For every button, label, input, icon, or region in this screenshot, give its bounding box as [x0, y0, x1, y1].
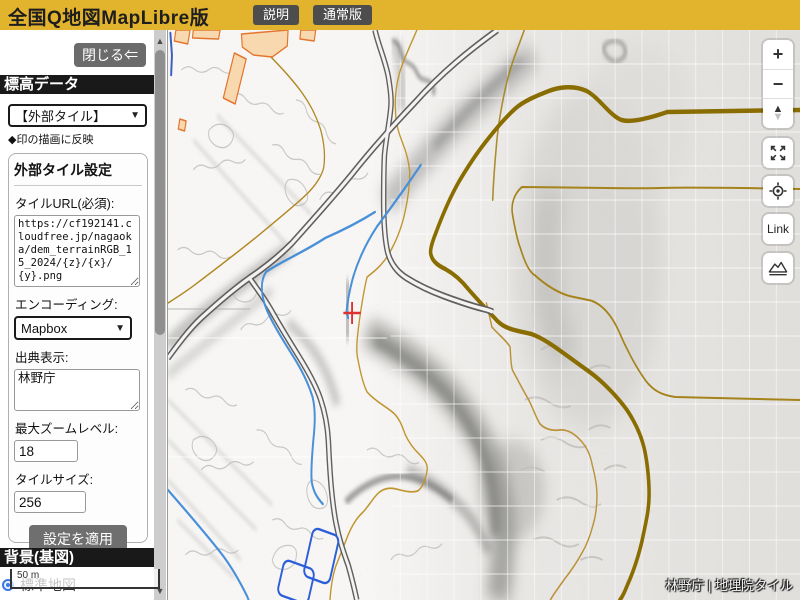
elevation-source-value: 【外部タイル】: [15, 106, 106, 125]
chevron-down-icon: ▼: [130, 110, 140, 121]
scroll-up-icon[interactable]: ▲: [154, 35, 166, 47]
map-scale-control: 50 m: [10, 569, 160, 589]
sidebar: 閉じる⇐ 標高データ 【外部タイル】 ▼ ◆印の描画に反映 外部タイル設定 タイ…: [0, 30, 168, 600]
normal-version-button[interactable]: 通常版: [313, 5, 372, 25]
elevation-data-header: 標高データ: [0, 75, 155, 94]
zoom-out-button[interactable]: −: [763, 69, 793, 98]
encoding-label: エンコーディング:: [15, 294, 142, 313]
fullscreen-button[interactable]: [763, 138, 793, 168]
chevron-down-icon: ▼: [115, 323, 125, 334]
sidebar-content: 閉じる⇐ 標高データ 【外部タイル】 ▼ ◆印の描画に反映 外部タイル設定 タイ…: [0, 30, 155, 600]
top-bar: 全国Q地図MapLibre版 説明 通常版: [0, 0, 800, 30]
app-title: 全国Q地図MapLibre版: [8, 3, 209, 30]
attribution-textarea[interactable]: 林野庁: [14, 369, 140, 411]
link-button[interactable]: Link: [763, 214, 793, 244]
external-tile-settings-title: 外部タイル設定: [14, 160, 142, 186]
zoom-control-group: + − ▲▼: [763, 40, 793, 128]
tile-url-label: タイルURL(必須):: [15, 193, 142, 212]
zoom-in-button[interactable]: +: [763, 40, 793, 69]
plus-icon: +: [773, 44, 784, 65]
link-button-label: Link: [767, 222, 789, 236]
geolocate-button[interactable]: [763, 176, 793, 206]
map-scale-label: 50 m: [17, 570, 39, 581]
external-tile-settings-box: 外部タイル設定 タイルURL(必須): https://cf192141.clo…: [8, 153, 148, 543]
compass-button[interactable]: ▲▼: [763, 98, 793, 127]
scrollbar-thumb[interactable]: [155, 50, 165, 335]
encoding-select[interactable]: Mapbox ▼: [14, 316, 132, 340]
elevation-note: ◆印の描画に反映: [8, 131, 93, 147]
tile-size-label: タイルサイズ:: [15, 469, 142, 488]
terrain-button[interactable]: [763, 253, 793, 283]
help-button[interactable]: 説明: [253, 5, 299, 25]
elevation-source-select[interactable]: 【外部タイル】 ▼: [8, 104, 147, 127]
app-window: { "topbar": { "title": "全国Q地図MapLibre版",…: [0, 0, 800, 600]
map-render: [168, 30, 800, 600]
minus-icon: −: [773, 74, 784, 95]
sidebar-close-button[interactable]: 閉じる⇐: [74, 43, 146, 67]
sidebar-scrollbar[interactable]: ▲ ▼: [154, 30, 166, 600]
tile-size-input[interactable]: [14, 491, 86, 513]
background-basemap-header: 背景(基図): [0, 548, 155, 567]
tile-url-textarea[interactable]: https://cf192141.cloudfree.jp/nagaoka/de…: [14, 215, 140, 287]
max-zoom-label: 最大ズームレベル:: [15, 418, 142, 437]
compass-icon: ▲▼: [773, 105, 784, 121]
attribution-label: 出典表示:: [15, 347, 142, 366]
max-zoom-input[interactable]: [14, 440, 78, 462]
encoding-value: Mapbox: [21, 321, 67, 336]
map-canvas[interactable]: [168, 30, 800, 600]
geolocate-icon: [768, 181, 788, 201]
fullscreen-icon: [768, 143, 788, 163]
mountains-icon: [767, 257, 789, 279]
map-attribution: 林野庁 | 地理院タイル: [665, 575, 793, 594]
